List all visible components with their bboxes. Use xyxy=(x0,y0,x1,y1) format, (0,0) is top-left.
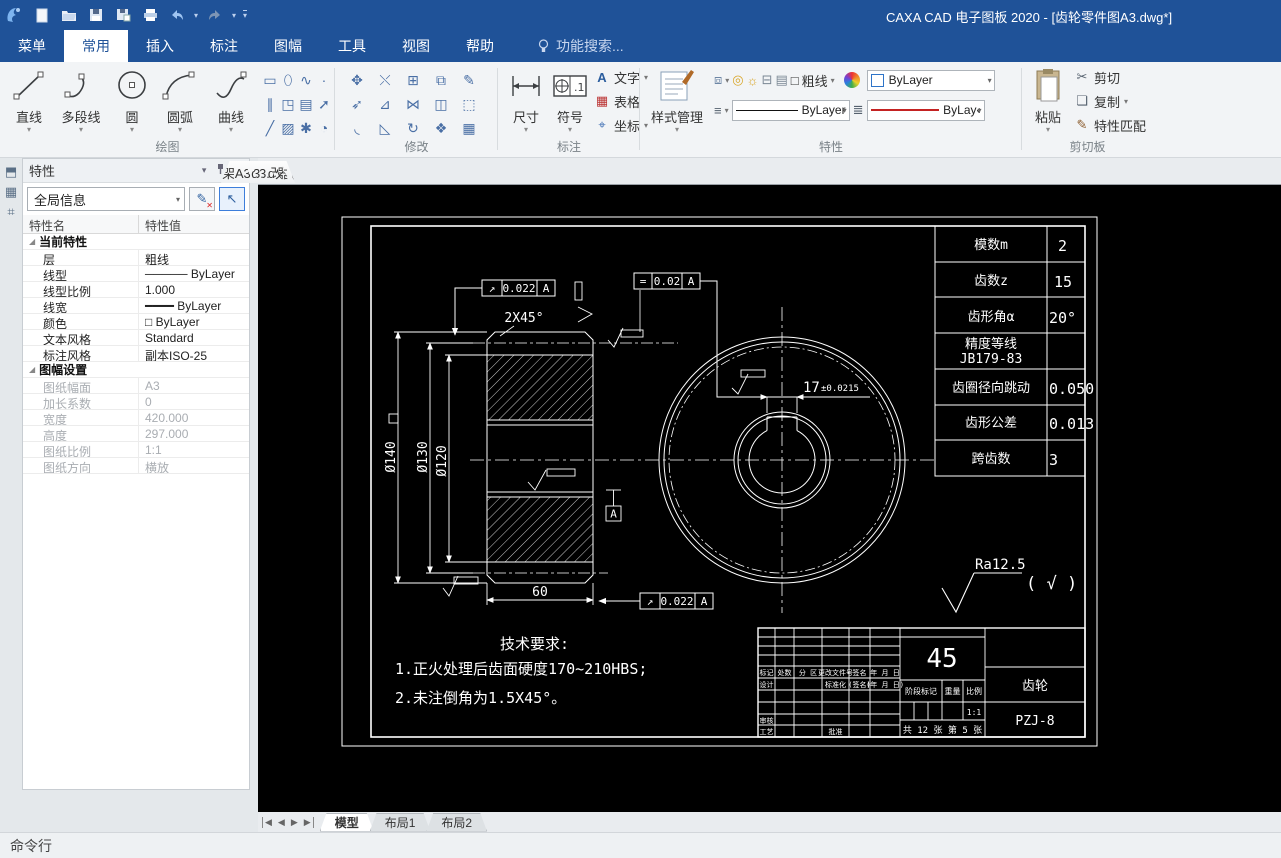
app-logo-icon xyxy=(4,5,26,25)
menu-tab-8[interactable]: 帮助 xyxy=(448,30,512,62)
layer-on-icon[interactable]: ◎ xyxy=(732,72,743,88)
style-manager-icon xyxy=(658,66,696,106)
print-button[interactable] xyxy=(140,6,160,24)
prev-layout-button[interactable]: ◀ xyxy=(276,817,287,828)
next-layout-button[interactable]: ▶ xyxy=(289,817,300,828)
tech-title: 技术要求: xyxy=(500,635,569,653)
menu-tab-4[interactable]: 标注 xyxy=(192,30,256,62)
text-icon: A xyxy=(594,70,610,85)
undo-button[interactable] xyxy=(167,6,187,24)
linetype-glyph xyxy=(736,110,798,111)
color-combo[interactable]: ByLayer▾ xyxy=(867,70,995,91)
tech-line1: 1.正火处理后齿面硬度170~210HBS; xyxy=(395,660,647,678)
extend-icon[interactable]: ⊿ xyxy=(373,92,397,116)
svg-text:.1: .1 xyxy=(574,81,585,94)
rotated-roughness-symbol xyxy=(575,282,640,332)
left-column: ⬒ ▦ ⌗ 特性 ▾ × 全局信息▾ ✎✕ ↖ 特性名 xyxy=(0,158,258,832)
current-layer-value: 粗线 xyxy=(802,71,828,90)
roughness-value: Ra12.5 xyxy=(975,557,1026,573)
scope-select[interactable]: 全局信息▾ xyxy=(27,187,185,211)
layer-tool-icon[interactable]: ⧈ xyxy=(714,72,722,88)
command-line-label[interactable]: 命令行 xyxy=(10,836,52,856)
color-swatch xyxy=(871,74,884,87)
param-label: 模数m xyxy=(974,238,1008,253)
draw-icon-grid: ▭⬯∿·∥◳▤➚╱▨✱◔ xyxy=(258,68,330,140)
dim-chamfer: 2X45° xyxy=(504,311,543,326)
tb-std: 标准化 xyxy=(825,680,846,689)
stretch-icon[interactable]: ⧉ xyxy=(429,68,453,92)
gdt-value: 0.022 xyxy=(502,282,535,295)
match-properties-icon: ✎ xyxy=(1074,117,1090,133)
customize-qat-button[interactable]: ▾ xyxy=(243,10,247,20)
property-row[interactable]: 标注风格 副本ISO-25 xyxy=(23,346,249,362)
function-search[interactable]: 功能搜索... xyxy=(538,30,624,62)
rotate-icon[interactable]: ↻ xyxy=(401,116,425,140)
properties-panel-title: 特性 xyxy=(29,161,55,180)
right-column: 自动排种箱体 (A3).dwg* 自动存储排种器(A1).dwg* 装配图修改.… xyxy=(258,158,1281,832)
property-grid-header: 特性名 特性值 xyxy=(23,215,249,234)
dim-d120: Ø120 xyxy=(435,445,450,476)
tb-scale-label: 比例 xyxy=(966,686,982,696)
curve-button[interactable]: 曲线▾ xyxy=(206,66,256,138)
tb-count: 处数 xyxy=(778,668,792,677)
dimension-button[interactable]: 尺寸▾ xyxy=(504,66,548,138)
group-current-properties[interactable]: ◢当前特性 xyxy=(23,234,249,250)
property-value-header: 特性值 xyxy=(139,215,187,233)
clipboard-section-label: 剪切板 xyxy=(1022,138,1153,155)
pie-icon[interactable]: ◔ xyxy=(312,116,336,140)
gdt-symbol: = xyxy=(640,275,647,288)
ribbon-section-annotate: 尺寸▾ .1 符号▾ A文字▾ ▦表格 ⌖坐标▾ 标注 xyxy=(498,62,640,157)
tb-check: 审核 xyxy=(760,716,774,725)
move-icon[interactable]: ✥ xyxy=(345,68,369,92)
save-button[interactable] xyxy=(86,6,106,24)
layer-dropdown[interactable]: ▾ xyxy=(831,76,835,85)
paste-button[interactable]: 粘贴▾ xyxy=(1026,66,1070,138)
draw-section-label: 绘图 xyxy=(0,138,335,155)
layer-print-icon[interactable]: ▤ xyxy=(775,72,787,88)
last-layout-button[interactable]: ▶ xyxy=(302,817,314,828)
tb-change-file: 更改文件号 xyxy=(818,668,853,677)
param-label: 齿形角α xyxy=(968,310,1015,325)
linetype-combo[interactable]: ByLayer▾ xyxy=(732,100,850,121)
undo-dropdown[interactable]: ▾ xyxy=(194,11,198,20)
tb-approve: 批准 xyxy=(829,727,843,736)
gdt-datum: A xyxy=(543,282,550,295)
open-file-button[interactable] xyxy=(59,6,79,24)
tb-material: 45 xyxy=(926,644,957,674)
gdt-value: 0.022 xyxy=(660,595,693,608)
circle-button[interactable]: 圆▾ xyxy=(110,66,154,138)
property-row[interactable]: 文本风格 Standard xyxy=(23,330,249,346)
point-icon[interactable]: · xyxy=(312,68,336,92)
layout-tab-bar: ◀ ◀ ▶ ▶ 模型布局1布局2 xyxy=(258,812,1281,832)
menu-tab-1[interactable]: 菜单 xyxy=(0,30,64,62)
property-row[interactable]: 高度 297.000 xyxy=(23,426,249,442)
copy-button[interactable]: ❏复制▾ xyxy=(1074,90,1152,112)
tb-date2: (年 月 日) xyxy=(866,680,904,689)
property-row[interactable]: 颜色 □ ByLayer xyxy=(23,314,249,330)
gdt-value: 0.02 xyxy=(654,275,681,288)
tb-drawing-number: PZJ-8 xyxy=(1015,714,1054,729)
gdt-symbol: ↗ xyxy=(489,282,496,295)
cut-button[interactable]: ✂剪切 xyxy=(1074,66,1152,88)
caxa-cad-window: ▾ ▾ ▾ CAXA CAD 电子图板 2020 - [齿轮零件图A3.dwg*… xyxy=(0,0,1281,858)
quick-access-toolbar: ▾ ▾ ▾ xyxy=(32,6,247,24)
chamfer-icon[interactable]: ◺ xyxy=(373,116,397,140)
library-palette-icon[interactable]: ▦ xyxy=(5,184,17,200)
layout-nav: ◀ ◀ ▶ ▶ xyxy=(258,817,320,828)
arc-button[interactable]: 圆弧▾ xyxy=(154,66,206,138)
ribbon-section-properties: 样式管理▾ ⧈▾ ◎ ☼ ⊟ ▤ □ 粗线▾ ByLayer▾ xyxy=(640,62,1022,157)
cut-icon: ✂ xyxy=(1074,69,1090,85)
clear-edit-button[interactable]: ✎✕ xyxy=(189,187,215,211)
group-sheet-settings[interactable]: ◢图幅设置 xyxy=(23,362,249,378)
menu-bar: 菜单常用插入标注图幅工具视图帮助 功能搜索... xyxy=(0,30,1281,62)
menu-tab-3[interactable]: 插入 xyxy=(128,30,192,62)
chamfer-leader xyxy=(500,326,514,336)
param-label: JB179-83 xyxy=(960,352,1023,367)
gdt-datum: A xyxy=(701,595,708,608)
property-row[interactable]: 加长系数 0 xyxy=(23,394,249,410)
edit-icon[interactable]: ✎ xyxy=(457,68,481,92)
save-all-button[interactable] xyxy=(113,6,133,24)
table-icon: ▦ xyxy=(594,93,610,109)
menu-tab-5[interactable]: 图幅 xyxy=(256,30,320,62)
param-label: 齿圈径向跳动 xyxy=(952,380,1030,396)
layer-lock-icon[interactable]: ⊟ xyxy=(762,72,773,88)
annotate-section-label: 标注 xyxy=(498,138,640,155)
circle-icon xyxy=(115,66,149,106)
line-button[interactable]: 直线▾ xyxy=(6,66,52,138)
property-row[interactable]: 图纸方向 横放 xyxy=(23,458,249,474)
properties-panel-header: 特性 ▾ × xyxy=(23,159,249,183)
tb-stage: 阶段标记 xyxy=(905,686,937,696)
tb-process: 工艺 xyxy=(760,728,774,736)
coordinate-icon: ⌖ xyxy=(594,117,610,133)
redo-button[interactable] xyxy=(205,6,225,24)
tb-mark: 标记 xyxy=(760,668,774,677)
property-row[interactable]: 图纸幅面 A3 xyxy=(23,378,249,394)
property-row[interactable]: 宽度 420.000 xyxy=(23,410,249,426)
style-manager-button[interactable]: 样式管理▾ xyxy=(646,66,708,138)
rotate-copy-icon[interactable]: ➶ xyxy=(345,92,369,116)
window-title: CAXA CAD 电子图板 2020 - [齿轮零件图A3.dwg*] xyxy=(886,7,1172,26)
dim-d140: Ø140 xyxy=(384,441,399,472)
modify-section-label: 修改 xyxy=(335,138,498,155)
dimension-icon xyxy=(509,66,543,106)
tb-part-name: 齿轮 xyxy=(1022,679,1048,694)
arc-icon xyxy=(162,66,198,106)
menu-tab-2[interactable]: 常用 xyxy=(64,30,128,62)
modify-icon-grid: ✥⤬⊞⧉✎➶⊿⋈◫⬚◟◺↻❖▦ xyxy=(345,68,485,140)
menu-tab-7[interactable]: 视图 xyxy=(384,30,448,62)
tb-date: 年 月 日 xyxy=(870,668,899,677)
layer-frozen-icon[interactable]: ☼ xyxy=(747,73,759,88)
function-search-label: 功能搜索... xyxy=(556,36,624,56)
datum-a-label: A xyxy=(610,508,617,521)
param-value: 15 xyxy=(1054,273,1072,291)
scale-icon[interactable]: ⬚ xyxy=(457,92,481,116)
gear-drawing: 模数m 2 齿数z 15 齿形角α 20° 精度等线 JB179-83 齿圈径向… xyxy=(258,185,1281,812)
gdt-frame-symmetry xyxy=(634,273,738,397)
status-bar: 命令行 xyxy=(0,832,1281,858)
corner-icon[interactable]: ◫ xyxy=(429,92,453,116)
property-row[interactable]: 图纸比例 1:1 xyxy=(23,442,249,458)
line-icon xyxy=(12,66,46,106)
redo-dropdown[interactable]: ▾ xyxy=(232,11,236,20)
surface-finish-note-symbol xyxy=(942,573,1022,612)
gdt-symbol: ↗ xyxy=(647,595,654,608)
tb-sheet: 共 12 张 第 5 张 xyxy=(903,724,982,736)
color-wheel-icon[interactable] xyxy=(844,72,860,88)
layer-color-box-icon[interactable]: □ xyxy=(791,73,799,88)
param-label: 齿形公差 xyxy=(965,416,1017,431)
param-label: 齿数z xyxy=(974,274,1008,289)
ribbon: 直线▾ 多段线▾ 圆▾ 圆弧▾ 曲线▾ xyxy=(0,62,1281,158)
dim-d130: Ø130 xyxy=(416,441,431,472)
property-row[interactable]: 线型比例 1.000 xyxy=(23,282,249,298)
properties-panel: 特性 ▾ × 全局信息▾ ✎✕ ↖ 特性名 特性值 ◢当前特性 xyxy=(22,158,250,790)
document-tab-bar: 自动排种箱体 (A3).dwg* 自动存储排种器(A1).dwg* 装配图修改.… xyxy=(258,158,1281,185)
layout-tab[interactable]: 布局1 xyxy=(370,813,431,832)
param-value: 2 xyxy=(1058,237,1067,255)
param-value: 20° xyxy=(1049,309,1076,327)
match-properties-button[interactable]: ✎特性匹配 xyxy=(1074,114,1152,136)
drawing-canvas[interactable]: 模数m 2 齿数z 15 齿形角α 20° 精度等线 JB179-83 齿圈径向… xyxy=(258,185,1281,812)
tb-design: 设计 xyxy=(760,680,774,689)
paste-icon xyxy=(1033,66,1063,106)
dim-keyway-tol: ±0.0215 xyxy=(821,384,859,394)
panel-menu-button[interactable]: ▾ xyxy=(202,165,207,176)
symbol-icon: .1 xyxy=(552,66,588,106)
first-layout-button[interactable]: ◀ xyxy=(262,817,274,828)
tb-weight: 重量 xyxy=(945,686,961,696)
symbol-button[interactable]: .1 符号▾ xyxy=(548,66,592,138)
lineweight-tool-icon[interactable]: ≣ xyxy=(853,102,864,118)
roughness-suffix: ( √ ) xyxy=(1026,574,1077,594)
mirror-icon[interactable]: ⋈ xyxy=(401,92,425,116)
polyline-button[interactable]: 多段线▾ xyxy=(52,66,110,138)
gdt-datum: A xyxy=(688,275,695,288)
explode-icon[interactable]: ❖ xyxy=(429,116,453,140)
break-icon[interactable]: ⤬ xyxy=(373,68,397,92)
param-value: 3 xyxy=(1049,451,1058,469)
erase-icon[interactable]: ▦ xyxy=(457,116,481,140)
lineweight-glyph xyxy=(871,109,940,111)
polyline-icon xyxy=(63,66,99,106)
properties-section-label: 特性 xyxy=(640,138,1022,155)
layout-tab[interactable]: 布局2 xyxy=(426,813,487,832)
copy-icon: ❏ xyxy=(1074,93,1090,109)
arrow-icon[interactable]: ➚ xyxy=(312,92,336,116)
left-icon-strip: ⬒ ▦ ⌗ xyxy=(0,158,22,832)
tb-zone: 分 区 xyxy=(799,668,817,677)
param-value: 0.013 xyxy=(1049,415,1094,433)
linetype-tool-icon[interactable]: ≡ xyxy=(714,103,722,118)
param-label: 跨齿数 xyxy=(971,452,1010,467)
property-name-header: 特性名 xyxy=(23,215,139,233)
ribbon-section-clipboard: 粘贴▾ ✂剪切 ❏复制▾ ✎特性匹配 剪切板 xyxy=(1022,62,1153,157)
search-lamp-icon xyxy=(538,39,549,54)
dim-length: 60 xyxy=(532,585,548,600)
fillet-icon[interactable]: ◟ xyxy=(345,116,369,140)
layout-tab[interactable]: 模型 xyxy=(320,813,374,832)
param-value: 0.050 xyxy=(1049,380,1094,398)
new-file-button[interactable] xyxy=(32,6,52,24)
property-row[interactable]: 层 粗线 xyxy=(23,250,249,266)
title-bar: ▾ ▾ ▾ CAXA CAD 电子图板 2020 - [齿轮零件图A3.dwg*… xyxy=(0,0,1281,30)
tech-line2: 2.未注倒角为1.5X45°。 xyxy=(395,689,566,707)
property-row[interactable]: 线宽 ━━━━ ByLayer xyxy=(23,298,249,314)
properties-palette-icon[interactable]: ⬒ xyxy=(5,164,17,180)
keyway-dimension xyxy=(738,397,870,413)
grid-palette-icon[interactable]: ⌗ xyxy=(7,204,14,220)
scope-row: 全局信息▾ ✎✕ ↖ xyxy=(23,183,249,215)
param-label: 精度等线 xyxy=(965,336,1017,352)
tb-scale: 1:1 xyxy=(967,708,982,717)
gdt-frame-runout-bottom xyxy=(599,593,713,609)
drawing-text: 模数m 2 齿数z 15 齿形角α 20° 精度等线 JB179-83 齿圈径向… xyxy=(384,237,1094,736)
pick-object-button[interactable]: ↖ xyxy=(219,187,245,211)
tb-sign: 签名 xyxy=(853,668,867,677)
gear-section-view xyxy=(473,332,678,583)
curve-icon xyxy=(213,66,249,106)
ribbon-section-modify: ✥⤬⊞⧉✎➶⊿⋈◫⬚◟◺↻❖▦ 修改 xyxy=(335,62,498,157)
array-icon[interactable]: ⊞ xyxy=(401,68,425,92)
menu-tab-6[interactable]: 工具 xyxy=(320,30,384,62)
lineweight-combo[interactable]: ByLay‹▾ xyxy=(867,100,985,121)
dim-keyway: 17 xyxy=(803,380,820,396)
ribbon-section-draw: 直线▾ 多段线▾ 圆▾ 圆弧▾ 曲线▾ xyxy=(0,62,335,157)
property-row[interactable]: 线型 ───── ByLayer xyxy=(23,266,249,282)
